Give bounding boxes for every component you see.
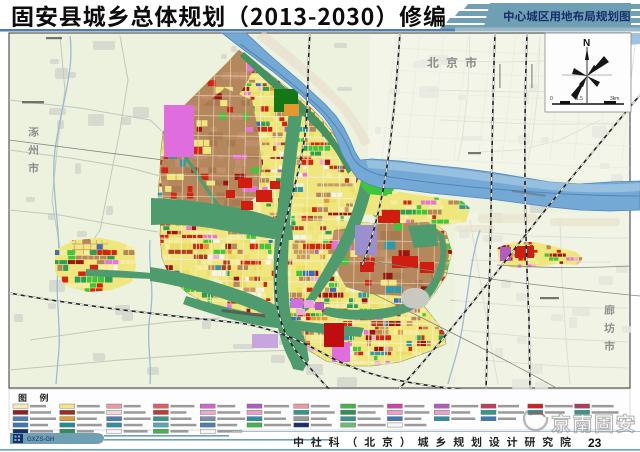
svg-text:GXZS-GH: GXZS-GH (27, 437, 54, 443)
svg-text:1.5: 1.5 (576, 96, 583, 102)
svg-text:23: 23 (588, 436, 602, 450)
svg-text:3km: 3km (610, 96, 619, 102)
svg-text:0: 0 (550, 96, 553, 102)
